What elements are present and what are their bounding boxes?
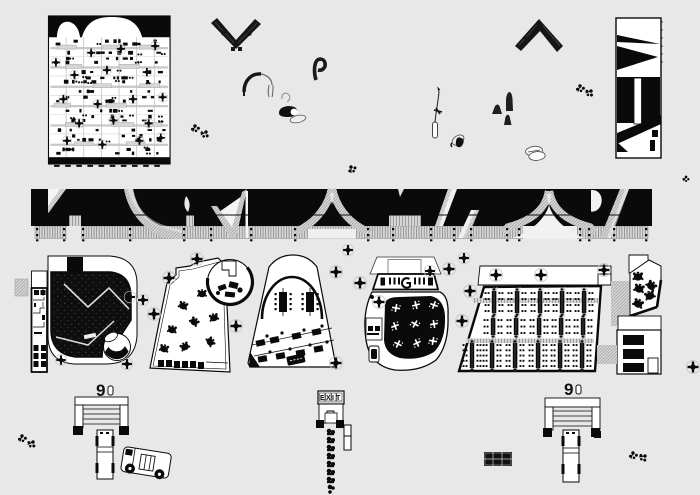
svg-text:9: 9 [564,380,573,399]
